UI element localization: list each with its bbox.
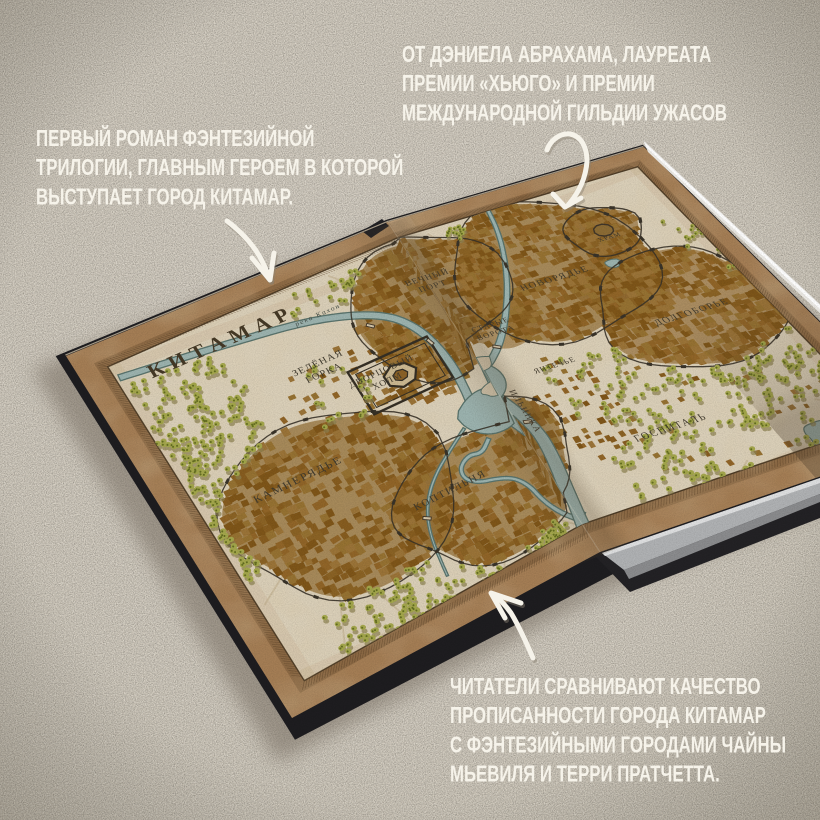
svg-text:МЬЕВИЛЯ И ТЕРРИ ПРАТЧЕТТА.: МЬЕВИЛЯ И ТЕРРИ ПРАТЧЕТТА. xyxy=(450,762,720,787)
svg-text:ВЫСТУПАЕТ ГОРОД КИТАМАР.: ВЫСТУПАЕТ ГОРОД КИТАМАР. xyxy=(36,185,293,210)
svg-text:ТРИЛОГИИ, ГЛАВНЫМ ГЕРОЕМ В КОТ: ТРИЛОГИИ, ГЛАВНЫМ ГЕРОЕМ В КОТОРОЙ xyxy=(36,153,403,181)
svg-text:ЧИТАТЕЛИ СРАВНИВАЮТ КАЧЕСТВО: ЧИТАТЕЛИ СРАВНИВАЮТ КАЧЕСТВО xyxy=(450,674,761,699)
svg-text:ПЕРВЫЙ РОМАН ФЭНТЕЗИЙНОЙ: ПЕРВЫЙ РОМАН ФЭНТЕЗИЙНОЙ xyxy=(36,124,314,152)
svg-text:ПРОПИСАННОСТИ ГОРОДА КИТАМАР: ПРОПИСАННОСТИ ГОРОДА КИТАМАР xyxy=(450,704,766,729)
svg-text:ОТ ДЭНИЕЛА АБРАХАМА, ЛАУРЕАТА: ОТ ДЭНИЕЛА АБРАХАМА, ЛАУРЕАТА xyxy=(402,42,711,67)
svg-text:С ФЭНТЕЗИЙНЫМИ ГОРОДАМИ ЧАЙНЫ: С ФЭНТЕЗИЙНЫМИ ГОРОДАМИ ЧАЙНЫ xyxy=(450,731,786,759)
svg-text:ПРЕМИИ «ХЬЮГО» И ПРЕМИИ: ПРЕМИИ «ХЬЮГО» И ПРЕМИИ xyxy=(402,72,655,97)
svg-text:МЕЖДУНАРОДНОЙ ГИЛЬДИИ УЖАСОВ: МЕЖДУНАРОДНОЙ ГИЛЬДИИ УЖАСОВ xyxy=(402,99,727,127)
